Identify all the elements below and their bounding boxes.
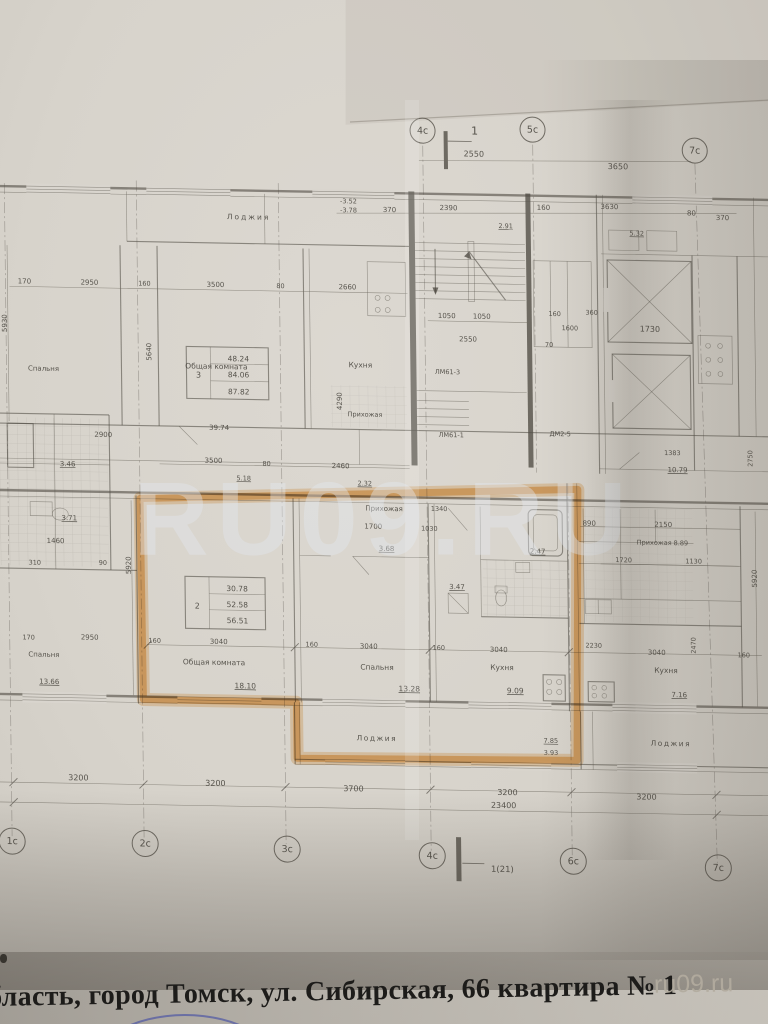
elev-378: -3.78 xyxy=(340,206,357,214)
dim-ll170: 170 xyxy=(22,633,35,641)
dim-lo3040a: 3040 xyxy=(210,638,228,646)
section-tick-bottom xyxy=(456,837,462,881)
label-dm2-5: ДМ2-5 xyxy=(549,430,570,438)
area-371: 3.71 xyxy=(61,514,77,522)
dim-370a: 370 xyxy=(383,206,396,214)
area-loggia-o2: 3.93 xyxy=(544,749,559,757)
dim-160t: 160 xyxy=(537,204,550,212)
apt2-r3: 56.51 xyxy=(227,616,249,625)
dim-lo160c: 160 xyxy=(433,644,446,652)
section-tick-top xyxy=(444,131,448,169)
dim-2230: 2230 xyxy=(585,642,602,650)
dim-1030: 1030 xyxy=(421,525,438,533)
room-living-o: Общая комната xyxy=(183,657,245,667)
dim-u80: 80 xyxy=(276,282,284,290)
dim-b3200b: 3200 xyxy=(205,779,225,788)
elev-232: 2.32 xyxy=(358,479,373,487)
dim-v5640: 5640 xyxy=(145,343,153,361)
apt3-num: 3 xyxy=(196,371,201,380)
staircase xyxy=(415,241,593,428)
dim-u160: 160 xyxy=(138,280,151,288)
axis-bot-7c: 7с xyxy=(713,863,724,874)
wall-lines xyxy=(0,184,768,773)
apt2-r2: 52.58 xyxy=(226,600,248,609)
dim-s1050b: 1050 xyxy=(473,313,491,321)
num-3974: 39.74 xyxy=(209,424,230,432)
room-bedroom-o: Спальня xyxy=(360,662,393,672)
apt2-r1: 30.78 xyxy=(226,584,248,593)
area-1079: 10.79 xyxy=(668,466,688,474)
room-kitchen-o: Кухня xyxy=(490,663,514,672)
elev-352: -3.52 xyxy=(340,197,357,205)
axis-bot-3c: 3с xyxy=(282,844,293,855)
room-kitchen-r: Кухня xyxy=(654,666,678,675)
elev-532: 5.32 xyxy=(629,229,644,237)
room-hall-ul: Прихожая xyxy=(348,410,383,419)
dim-80t: 80 xyxy=(687,209,696,217)
dim-23400: 23400 xyxy=(491,801,517,810)
room-loggia-r: Лоджия xyxy=(651,739,692,749)
dim-2470: 2470 xyxy=(690,637,698,654)
dim-90: 90 xyxy=(99,559,107,567)
dim-u170: 170 xyxy=(18,277,31,285)
dim-5920l: 5920 xyxy=(125,556,133,574)
apt3-r1: 48.24 xyxy=(228,354,250,363)
area-bath-o: 2.47 xyxy=(530,548,546,556)
axis-top-7c: 7с xyxy=(689,145,700,156)
area-346: 3.46 xyxy=(60,460,76,468)
dim-1460: 1460 xyxy=(47,537,65,545)
dim-v4290: 4290 xyxy=(336,392,344,410)
watermark-corner: ru09.ru xyxy=(654,969,734,999)
axis-bot-6c: 6с xyxy=(568,856,579,867)
area-wc-o: 3.47 xyxy=(449,583,465,591)
room-bedroom-ul: Спальня xyxy=(28,365,59,374)
dim-lo160d: 160 xyxy=(738,651,751,659)
axis-bot-4c: 4с xyxy=(427,851,438,862)
dim-b3200c: 3200 xyxy=(497,788,517,797)
dim-s360: 360 xyxy=(585,309,598,317)
area-living-o: 18.10 xyxy=(234,681,256,690)
dim-s70: 70 xyxy=(545,341,553,349)
stair-wall-right xyxy=(525,194,533,468)
dim-s1050a: 1050 xyxy=(438,312,456,320)
dim-s2550: 2550 xyxy=(459,335,477,343)
elevator-shafts xyxy=(603,230,733,430)
elev-518: 5.18 xyxy=(236,474,251,482)
area-bedroom-ll: 13.66 xyxy=(39,678,60,686)
apt3-r3: 87.82 xyxy=(228,387,250,396)
dim-1730: 1730 xyxy=(640,325,660,334)
paper-speck xyxy=(0,954,7,963)
apt2-num: 2 xyxy=(195,601,200,610)
section-mark-label: 1(21) xyxy=(491,865,514,875)
dim-u2950: 2950 xyxy=(80,278,98,286)
axis-bot-1c: 1с xyxy=(6,836,17,847)
dim-ll2950: 2950 xyxy=(81,633,99,641)
room-bedroom-ll: Спальня xyxy=(28,650,59,659)
dim-m80: 80 xyxy=(262,460,270,468)
dim-lo160b: 160 xyxy=(305,640,318,648)
dimension-lines xyxy=(0,149,768,820)
apt3-r2: 84.06 xyxy=(228,370,250,379)
label-lm61-1: ЛМ61-1 xyxy=(439,431,464,439)
dim-370b: 370 xyxy=(716,214,729,222)
dim-1383: 1383 xyxy=(664,449,681,457)
stair-wall-left xyxy=(408,191,417,465)
dim-3630: 3630 xyxy=(600,203,618,211)
dim-s160: 160 xyxy=(548,310,561,318)
room-hall-o: Прихожая xyxy=(365,505,403,514)
room-hall-r: Прихожая 8.89 xyxy=(637,538,688,547)
dim-1130: 1130 xyxy=(685,557,702,565)
dim-lo3040c: 3040 xyxy=(490,646,508,654)
dim-2390: 2390 xyxy=(440,204,458,212)
dim-5920r: 5920 xyxy=(751,570,759,588)
area-loggia-o1: 7.85 xyxy=(544,737,559,745)
dim-m2460: 2460 xyxy=(332,462,350,470)
room-kitchen-ul: Кухня xyxy=(349,360,373,369)
dim-lo160a: 160 xyxy=(148,637,161,645)
axis-top-tick-1: 1 xyxy=(471,125,478,138)
dim-lo3040b: 3040 xyxy=(360,642,378,650)
dim-b3200a: 3200 xyxy=(68,773,88,782)
dim-890: 890 xyxy=(583,519,596,527)
dim-2550: 2550 xyxy=(464,149,484,158)
dim-b3200d: 3200 xyxy=(636,792,656,801)
dim-u3500: 3500 xyxy=(206,281,224,289)
photo-of-floorplan: 4с 1 5с 7с 2550 3650 -3.52 -3.78 370 239… xyxy=(0,0,768,1024)
label-lm61-3: ЛМ61-3 xyxy=(435,368,460,376)
floorplan-drawing: 4с 1 5с 7с 2550 3650 -3.52 -3.78 370 239… xyxy=(0,0,768,1024)
room-loggia-o: Лоджия xyxy=(357,733,398,743)
dim-s1600: 1600 xyxy=(562,324,579,332)
room-loggia-top: Лоджия xyxy=(227,212,271,222)
dim-u2660: 2660 xyxy=(338,283,356,291)
dim-2150: 2150 xyxy=(654,521,672,529)
dim-3650: 3650 xyxy=(608,162,628,171)
elev-291: 2.91 xyxy=(498,222,513,230)
dim-m3500: 3500 xyxy=(205,457,223,465)
area-bedroom-o: 13.28 xyxy=(398,684,420,693)
axis-top-4c: 4с xyxy=(417,126,428,137)
dim-310: 310 xyxy=(29,559,42,567)
dim-1700: 1700 xyxy=(364,523,382,531)
dim-1340: 1340 xyxy=(431,505,448,513)
axis-top-5c: 5с xyxy=(527,125,538,136)
dim-2750: 2750 xyxy=(746,450,754,467)
dim-lo3040d: 3040 xyxy=(648,649,666,657)
area-kitchen-o: 9.09 xyxy=(507,686,524,695)
dim-v5930: 5930 xyxy=(1,314,9,332)
area-kitchen-r: 7.16 xyxy=(671,691,687,699)
sheet-edge-line xyxy=(350,100,768,122)
area-hall-o: 3.68 xyxy=(379,545,395,553)
dim-2900: 2900 xyxy=(94,431,112,439)
axis-bot-2c: 2с xyxy=(139,838,150,849)
dim-b3700: 3700 xyxy=(343,784,363,793)
dim-1720: 1720 xyxy=(615,556,632,564)
highlighted-apartment-outline xyxy=(140,482,581,764)
